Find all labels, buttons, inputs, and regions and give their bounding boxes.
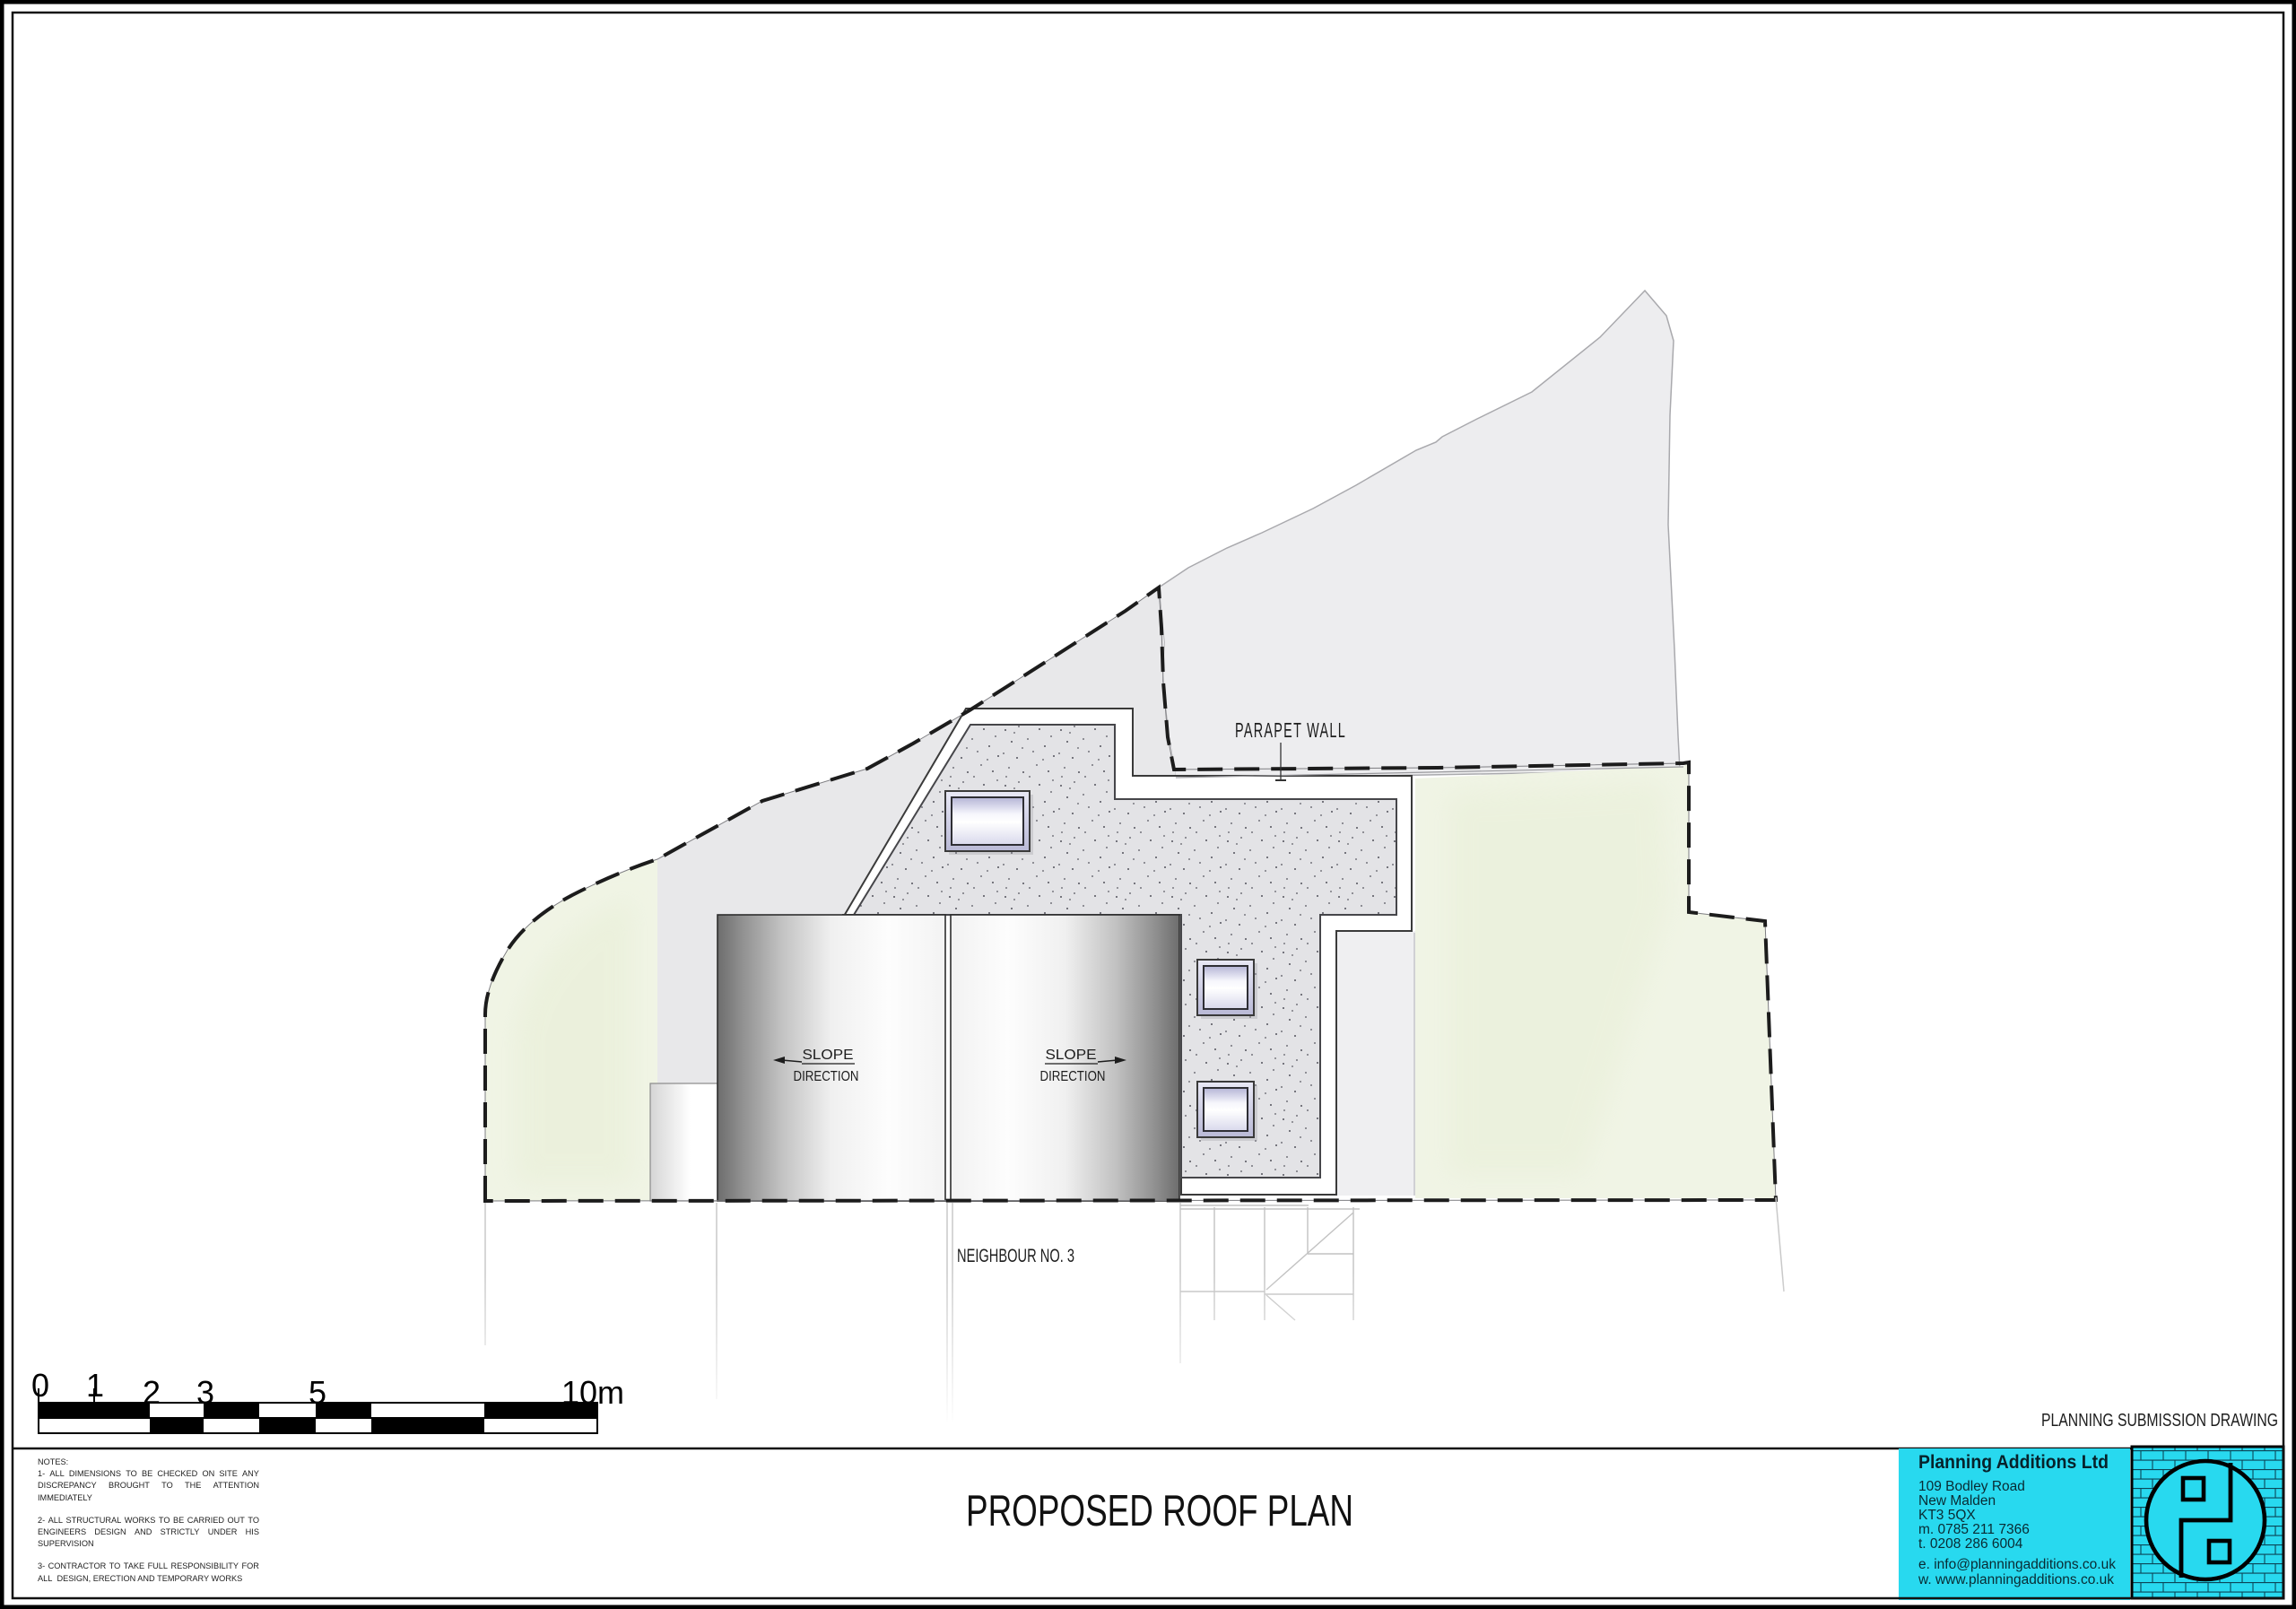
svg-text:0: 0 [31, 1367, 49, 1404]
svg-text:e. info@planningadditions.co.: e. info@planningadditions.co.uk [1918, 1557, 2116, 1572]
svg-text:m. 0785 211 7366: m. 0785 211 7366 [1918, 1522, 2030, 1537]
svg-text:PARAPET WALL: PARAPET WALL [1235, 718, 1346, 742]
svg-text:PLANNING SUBMISSION DRAWING: PLANNING SUBMISSION DRAWING [2041, 1411, 2278, 1431]
svg-text:2: 2 [143, 1374, 161, 1411]
svg-text:5: 5 [309, 1374, 326, 1411]
svg-text:w. www.planningadditions.co.uk: w. www.planningadditions.co.uk [1918, 1572, 2114, 1587]
svg-text:DIRECTION: DIRECTION [794, 1069, 859, 1084]
svg-text:1: 1 [86, 1367, 104, 1404]
svg-text:3: 3 [196, 1374, 214, 1411]
svg-text:KT3 5QX: KT3 5QX [1918, 1508, 1976, 1523]
svg-text:NEIGHBOUR NO. 3: NEIGHBOUR NO. 3 [957, 1246, 1074, 1266]
svg-text:109 Bodley Road: 109 Bodley Road [1918, 1479, 2025, 1494]
svg-text:10m: 10m [561, 1374, 624, 1411]
svg-text:SLOPE: SLOPE [803, 1048, 854, 1063]
svg-text:PROPOSED ROOF PLAN: PROPOSED ROOF PLAN [966, 1487, 1353, 1535]
svg-text:t. 0208 286 6004: t. 0208 286 6004 [1918, 1536, 2023, 1552]
svg-text:DIRECTION: DIRECTION [1040, 1069, 1106, 1084]
svg-text:Planning Additions Ltd: Planning Additions Ltd [1918, 1452, 2109, 1473]
svg-text:New Malden: New Malden [1918, 1493, 1996, 1509]
svg-text:SLOPE: SLOPE [1046, 1048, 1097, 1063]
